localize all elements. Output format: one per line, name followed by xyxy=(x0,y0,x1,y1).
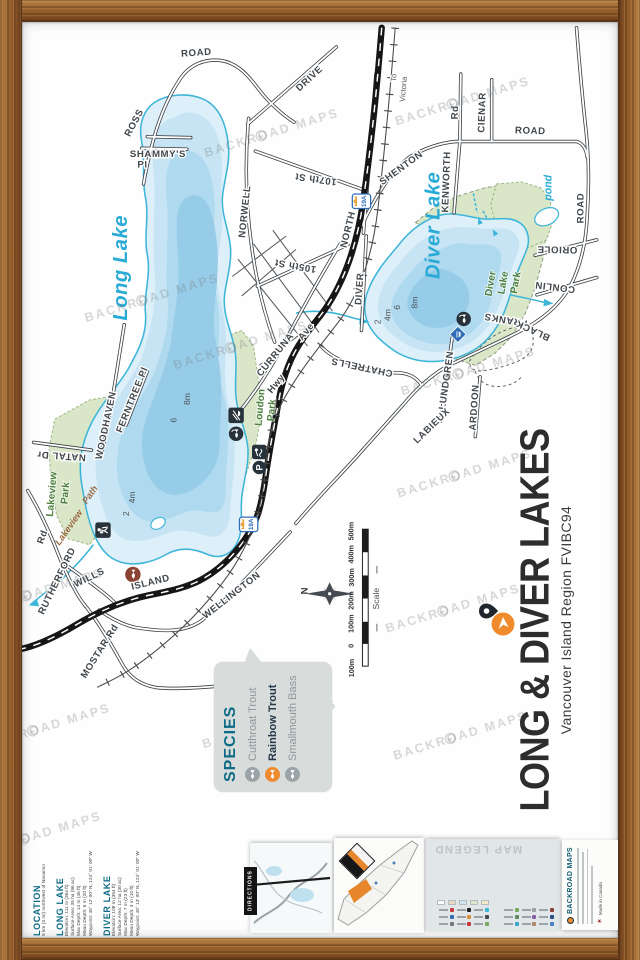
map-label-ardoon: ARDOON xyxy=(468,384,482,431)
stat-line: Waypoint: 49° 12' 00" N, 124° 01' 00" W xyxy=(89,840,95,936)
directions-thumbnail-card: DIRECTIONS xyxy=(250,843,332,933)
swimming-icon xyxy=(252,445,266,459)
made-in-label: Made in Canada xyxy=(598,882,603,915)
long-lake-group: LONG LAKE Elevation: 111 m (364 ft) Surf… xyxy=(55,840,95,936)
lake-stats-block: LOCATION 5 km (3 mi) northwest of Nanaim… xyxy=(25,840,180,936)
legend-column xyxy=(497,900,554,926)
map-label-diver-lake: Diver Lake xyxy=(423,172,445,279)
map-label-4m: 4m xyxy=(382,309,392,321)
pin-icon xyxy=(567,917,574,924)
legend-item xyxy=(440,922,455,926)
map-label-to: To xyxy=(389,73,399,82)
fine-print xyxy=(587,849,589,924)
title-block: LONG & DIVER LAKES Vancouver Island Regi… xyxy=(478,425,585,815)
species-row: Cutthroat Trout xyxy=(245,672,260,782)
legend-item xyxy=(475,908,490,912)
fish-icon xyxy=(265,767,280,782)
made-in-canada: ✶ Made in Canada xyxy=(597,846,604,924)
legend-symbol-rows xyxy=(432,900,554,926)
map-label-road: ROAD xyxy=(181,47,212,60)
region-inset-card xyxy=(334,838,424,933)
map-label-105th-st: 105th St xyxy=(274,256,318,274)
fish-icon xyxy=(285,767,300,782)
scale-label: 500m xyxy=(347,522,356,540)
trailhead-hiker-icon xyxy=(95,522,110,537)
watermark: BACKROAD MAPS xyxy=(22,701,112,755)
svg-text:19A: 19A xyxy=(248,518,255,530)
map-label-4m: 4m xyxy=(127,491,137,503)
legend-item xyxy=(440,915,455,919)
diver-lake-heading: DIVER LAKE xyxy=(102,840,112,936)
location-group: LOCATION 5 km (3 mi) northwest of Nanaim… xyxy=(32,840,48,936)
outflow-arrow xyxy=(543,299,553,307)
fishing-icon xyxy=(229,426,243,440)
scale-label: 400m xyxy=(347,545,356,563)
legend-area-chips xyxy=(432,900,489,905)
brand-panel: BACKROAD MAPS ✶ Made in Canada xyxy=(562,840,620,930)
map-label-shenton: SHENTON xyxy=(378,149,426,188)
frame-left xyxy=(0,0,22,960)
brand-panel-content: BACKROAD MAPS ✶ Made in Canada xyxy=(562,840,620,930)
fine-print xyxy=(577,848,579,924)
legend-item xyxy=(522,922,537,926)
legend-row xyxy=(432,915,489,919)
brand-heading: BACKROAD MAPS xyxy=(567,846,574,924)
species-box-tail xyxy=(244,648,263,664)
hwy-shield-19A: 19A xyxy=(352,194,370,208)
directions-label: DIRECTIONS xyxy=(248,871,254,912)
legend-chip xyxy=(437,900,445,905)
species-name: Rainbow Trout xyxy=(267,685,279,761)
framed-map-poster: P xyxy=(0,0,640,960)
svg-text:BACKROAD MAPS: BACKROAD MAPS xyxy=(393,74,531,128)
location-line: 5 km (3 mi) northwest of Nanaimo xyxy=(42,840,48,936)
legend-chip xyxy=(448,900,456,905)
map-label-park: Park xyxy=(59,482,72,505)
legend-item xyxy=(475,915,490,919)
scale-label: 100m xyxy=(347,614,356,632)
legend-chip xyxy=(481,900,489,905)
hwy-shield-19A: 19A xyxy=(239,517,257,531)
legend-item xyxy=(505,922,520,926)
legend-item xyxy=(540,915,555,919)
directions-tab: DIRECTIONS xyxy=(244,867,257,915)
legend-row xyxy=(432,922,489,926)
species-name: Cutthroat Trout xyxy=(247,688,259,761)
map-legend-panel: MAP LEGEND xyxy=(426,839,560,931)
svg-text:P: P xyxy=(255,464,265,470)
thumbnail-map xyxy=(250,843,332,933)
legend-row xyxy=(497,908,554,912)
backroad-pin-logo xyxy=(478,603,516,637)
fine-print xyxy=(591,866,593,924)
diver-lake-group: DIVER LAKE Elevation: 108 m (354 ft) Sur… xyxy=(102,840,142,936)
svg-text:19A: 19A xyxy=(361,195,368,207)
map-label-road: ROAD xyxy=(575,193,586,224)
map-label-2: 2 xyxy=(373,319,383,324)
map-label-road: ROAD xyxy=(515,125,546,137)
fish-icon xyxy=(245,767,260,782)
svg-text:BACKROAD MAPS: BACKROAD MAPS xyxy=(22,701,112,755)
parking-icon: P xyxy=(252,461,266,475)
frame-bottom xyxy=(0,938,640,960)
legend-column xyxy=(432,900,489,926)
location-heading: LOCATION xyxy=(32,840,42,936)
frame-top xyxy=(0,0,640,22)
map-label-2: 2 xyxy=(121,511,131,516)
legend-row xyxy=(497,915,554,919)
poster-subtitle: Vancouver Island Region FVIBC94 xyxy=(558,506,574,734)
scale-label: 200m xyxy=(347,591,356,609)
map-label-diver: DIVER xyxy=(353,272,366,305)
frame-right xyxy=(618,0,640,960)
map-label-labieux: LABIEUX xyxy=(412,406,453,446)
legend-item xyxy=(440,908,455,912)
boat-launch-icon xyxy=(228,408,243,423)
legend-item xyxy=(522,915,537,919)
legend-item xyxy=(475,922,490,926)
map-label-shammy-s: SHAMMY'S xyxy=(130,149,186,160)
legend-item xyxy=(540,922,555,926)
legend-item xyxy=(540,908,555,912)
stat-line: Waypoint: 49° 13' 00" N, 124° 01' 00" W xyxy=(136,840,142,936)
species-heading: SPECIES xyxy=(222,672,240,782)
scale-label: 100m xyxy=(347,659,356,677)
map-label-oriole: ORIOLE xyxy=(537,243,578,255)
scale-label: 0 xyxy=(347,644,356,648)
species-box: SPECIES Cutthroat Trout Rainbow Trout Sm… xyxy=(214,662,332,792)
legend-item xyxy=(505,915,520,919)
fine-print xyxy=(582,852,584,924)
map-label-pond: pond xyxy=(542,174,554,201)
legend-item xyxy=(457,922,472,926)
map-label-park: Park xyxy=(266,399,279,422)
map-label-chatrells: CHATRELLS xyxy=(330,355,394,379)
legend-item xyxy=(457,908,472,912)
poster-title: LONG & DIVER LAKES xyxy=(514,428,556,811)
species-name: Smallmouth Bass xyxy=(287,675,299,761)
map-label-victoria: Victoria xyxy=(398,75,409,102)
maple-leaf-icon: ✶ xyxy=(597,918,604,924)
map-label-6: 6 xyxy=(168,418,178,423)
legend-item xyxy=(505,908,520,912)
legend-row xyxy=(432,908,489,912)
legend-chip xyxy=(470,900,478,905)
map-label-n: N xyxy=(299,587,310,594)
long-lake-heading: LONG LAKE xyxy=(55,840,65,936)
scale-caption: Scale xyxy=(371,588,381,610)
map-legend-title: MAP LEGEND xyxy=(434,843,522,855)
scale-label: 300m xyxy=(347,568,356,586)
watermark: BACKROAD MAPS xyxy=(393,74,531,128)
map-label-8m: 8m xyxy=(409,297,419,309)
legend-row xyxy=(497,922,554,926)
legend-item xyxy=(457,915,472,919)
brand-name: BACKROAD MAPS xyxy=(567,847,574,914)
legend-item xyxy=(522,908,537,912)
fishing-icon xyxy=(456,312,470,326)
map-label-8m: 8m xyxy=(182,393,192,405)
species-row: Smallmouth Bass xyxy=(285,672,300,782)
map-label-6: 6 xyxy=(392,305,402,310)
legend-chip xyxy=(459,900,467,905)
map-label-pl: Pl xyxy=(137,160,147,171)
species-row: Rainbow Trout xyxy=(265,672,280,782)
